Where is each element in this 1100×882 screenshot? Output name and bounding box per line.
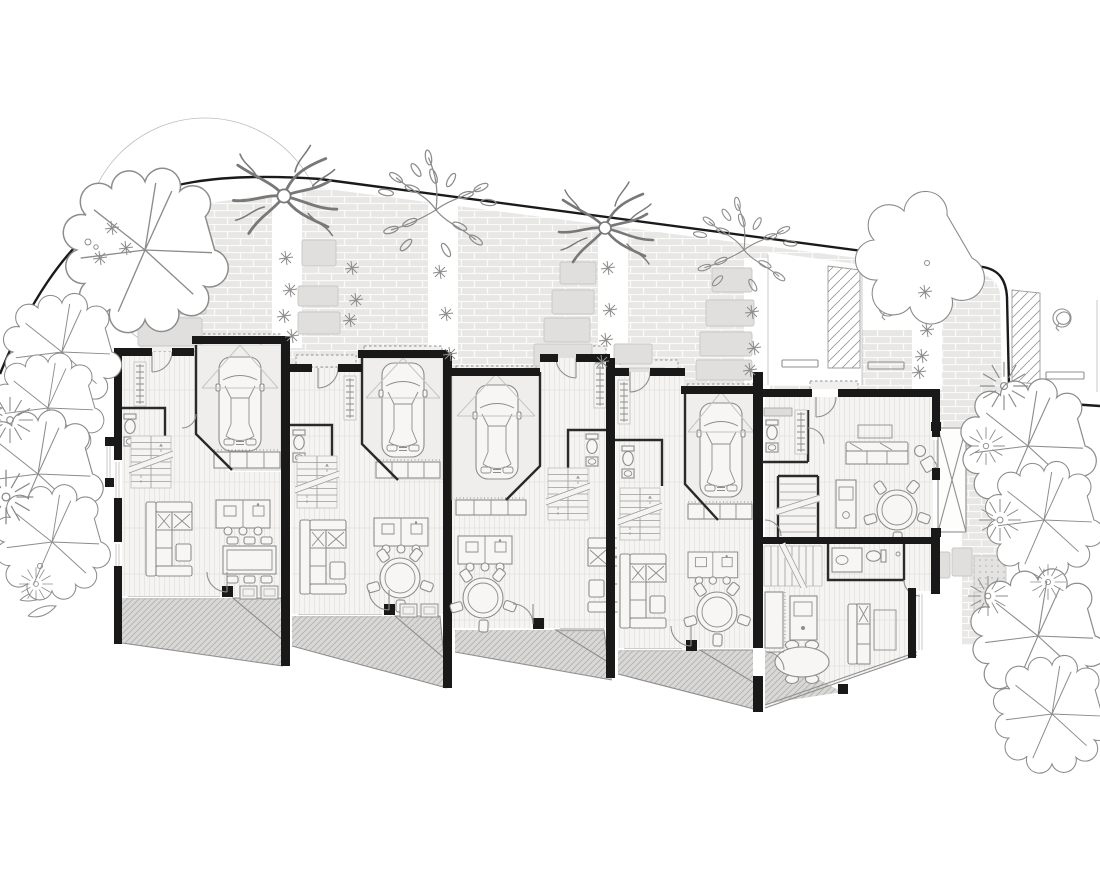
- kitchen-counter: [765, 592, 785, 648]
- stepping-stone: [700, 332, 752, 356]
- stepping-stone: [544, 318, 590, 342]
- planting-strip: [428, 196, 458, 360]
- garage-storage: [456, 498, 526, 515]
- dining-table: [223, 537, 276, 583]
- terrace: [455, 630, 612, 680]
- party-wall: [281, 340, 290, 666]
- side-table: [915, 446, 926, 457]
- garage-storage: [214, 450, 280, 468]
- stepping-stone: [712, 268, 752, 292]
- sofa: [846, 442, 908, 464]
- house-1: [105, 336, 290, 666]
- entry-closet: [594, 364, 606, 408]
- canopy-tree: [0, 485, 110, 600]
- kitchen-island: [458, 536, 512, 571]
- stairwell: [776, 476, 820, 538]
- party-wall: [606, 358, 615, 678]
- entry-closet: [795, 410, 807, 454]
- house-5b: [764, 544, 940, 708]
- kitchen-island: [374, 518, 428, 553]
- mid-wall: [756, 537, 940, 544]
- stairs: [546, 468, 590, 520]
- car: [697, 403, 745, 497]
- site-plan-drawing: [0, 0, 1100, 882]
- car: [216, 357, 264, 451]
- planting-strip: [272, 190, 302, 348]
- terrace-door-post: [838, 684, 848, 694]
- stepping-stone: [696, 360, 752, 380]
- kitchen-island: [216, 500, 270, 535]
- site-plan-page: [0, 0, 1100, 882]
- houses-layer: [105, 336, 966, 712]
- party-wall: [443, 352, 452, 688]
- stepping-stone: [298, 286, 338, 306]
- stepping-stone: [302, 240, 336, 266]
- house-2: [290, 350, 452, 688]
- house-4: [615, 368, 763, 712]
- entry-closet: [344, 376, 356, 420]
- stepping-stone: [552, 290, 594, 314]
- stepping-stone: [298, 312, 340, 334]
- terrace-door-post: [533, 618, 544, 629]
- car: [379, 363, 427, 457]
- house-5: [753, 389, 966, 708]
- entry-closet: [134, 362, 146, 406]
- kitchen-island: [790, 596, 817, 640]
- house-5a: [756, 389, 966, 544]
- wc: [622, 446, 634, 478]
- stairs: [129, 436, 173, 488]
- terrace-door-gap: [753, 648, 763, 676]
- hatched-stall: [1012, 290, 1040, 384]
- kitchen-unit: [836, 480, 856, 528]
- canopy-tree: [993, 655, 1100, 773]
- front-wall: [756, 389, 940, 397]
- house-3: [448, 354, 634, 680]
- stepping-stone: [560, 262, 596, 284]
- terrace: [122, 598, 283, 666]
- entry-shelf: [764, 408, 792, 416]
- stepping-stone: [614, 344, 652, 364]
- stairs: [764, 544, 822, 588]
- wc: [586, 434, 598, 466]
- stepping-stone: [952, 548, 972, 576]
- sofa: [848, 604, 870, 664]
- stairs: [295, 456, 339, 508]
- kitchen-island: [688, 552, 738, 584]
- terrace: [618, 650, 758, 710]
- stairs: [618, 488, 662, 540]
- car: [473, 385, 521, 479]
- wc: [766, 420, 778, 452]
- canopy-tree: [63, 168, 228, 332]
- entry-closet: [618, 380, 630, 424]
- garage-storage: [688, 502, 752, 519]
- hatched-stall: [828, 266, 860, 368]
